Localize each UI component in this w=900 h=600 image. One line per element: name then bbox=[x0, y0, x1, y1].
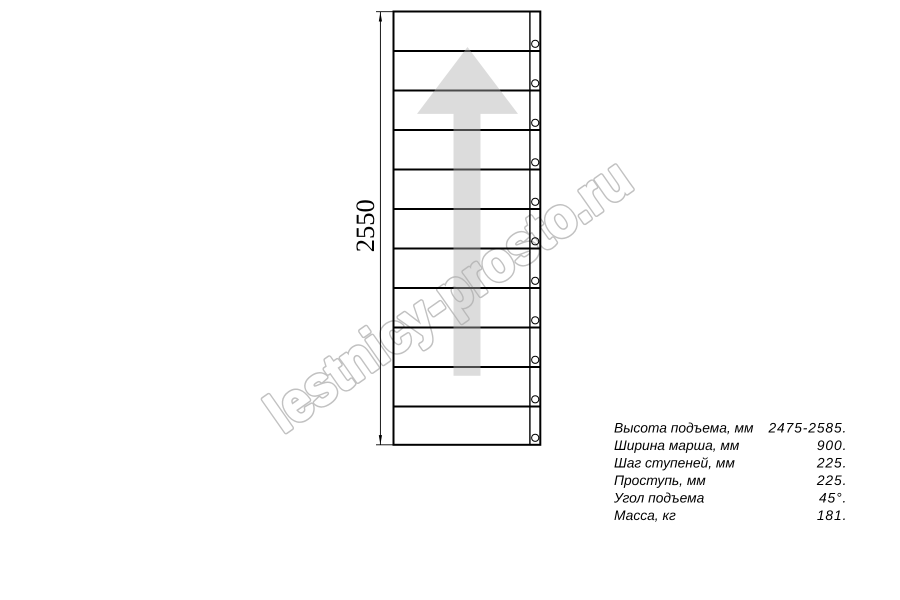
svg-text:900.: 900. bbox=[817, 438, 847, 453]
svg-text:Проступь, мм: Проступь, мм bbox=[614, 473, 706, 488]
svg-text:225.: 225. bbox=[816, 456, 847, 471]
svg-text:Высота подъема, мм: Высота подъема, мм bbox=[614, 421, 754, 436]
svg-text:2550: 2550 bbox=[350, 199, 380, 252]
svg-text:2475-2585.: 2475-2585. bbox=[767, 421, 847, 436]
svg-text:Угол подъема: Угол подъема bbox=[613, 491, 705, 506]
svg-text:181.: 181. bbox=[817, 508, 847, 523]
svg-text:Шаг ступеней, мм: Шаг ступеней, мм bbox=[614, 456, 735, 471]
svg-text:225.: 225. bbox=[816, 473, 847, 488]
svg-text:Масса, кг: Масса, кг bbox=[614, 508, 676, 523]
svg-text:45°.: 45°. bbox=[819, 491, 847, 506]
svg-text:Ширина марша, мм: Ширина марша, мм bbox=[614, 438, 740, 453]
